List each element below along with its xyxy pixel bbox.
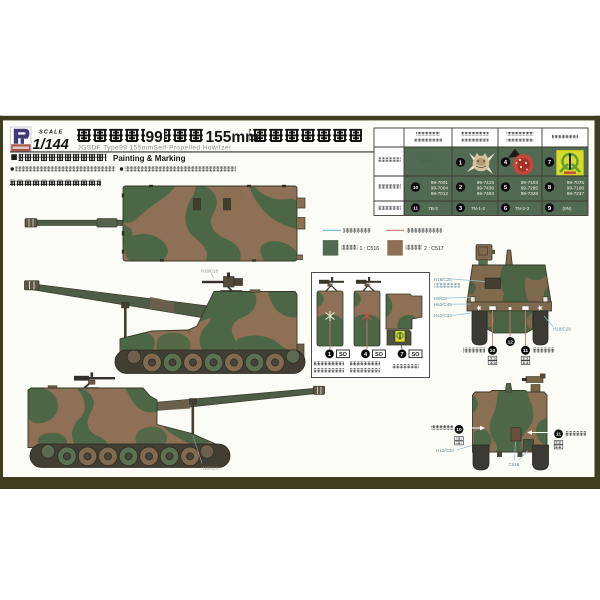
svg-text:1 : C516: 1 : C516 bbox=[360, 246, 380, 252]
svg-text:12: 12 bbox=[508, 339, 514, 345]
svg-text:2 : C517: 2 : C517 bbox=[424, 246, 444, 252]
svg-text:11: 11 bbox=[556, 432, 561, 438]
svg-text:H18/C28: H18/C28 bbox=[553, 327, 571, 332]
svg-text:99-7328: 99-7328 bbox=[521, 191, 539, 196]
svg-text:H18/C28: H18/C28 bbox=[434, 277, 452, 282]
svg-text:Painting & Marking: Painting & Marking bbox=[113, 154, 186, 163]
svg-text:H18/C28: H18/C28 bbox=[201, 269, 219, 274]
svg-text:SO: SO bbox=[339, 352, 348, 358]
svg-text:H18/C28: H18/C28 bbox=[201, 466, 219, 471]
svg-text:99-7436: 99-7436 bbox=[477, 186, 495, 191]
svg-text:1: 1 bbox=[328, 352, 331, 358]
svg-text:1/144: 1/144 bbox=[33, 137, 69, 153]
svg-text:JGSDF Type99 155mmSelf-Propell: JGSDF Type99 155mmSelf-Propelled Howitze… bbox=[78, 145, 232, 152]
svg-text:99-7012: 99-7012 bbox=[431, 191, 449, 196]
svg-text:99-7004: 99-7004 bbox=[431, 186, 449, 191]
svg-text:H8/C8: H8/C8 bbox=[434, 296, 447, 301]
svg-text:10: 10 bbox=[490, 348, 496, 354]
svg-text:10: 10 bbox=[456, 427, 462, 433]
svg-text:2: 2 bbox=[459, 185, 462, 191]
svg-text:99-7237: 99-7237 bbox=[567, 191, 585, 196]
svg-text:7: 7 bbox=[400, 352, 403, 358]
svg-text:11: 11 bbox=[523, 348, 528, 354]
svg-text:SCALE: SCALE bbox=[39, 130, 63, 136]
svg-text:7N-2-3: 7N-2-3 bbox=[515, 206, 529, 211]
svg-text:H62/C49: H62/C49 bbox=[434, 302, 452, 307]
svg-text:10: 10 bbox=[413, 185, 419, 191]
svg-text:C516: C516 bbox=[509, 462, 520, 467]
svg-text:99-7075: 99-7075 bbox=[567, 180, 585, 185]
svg-text:H12/C33: H12/C33 bbox=[436, 448, 454, 453]
svg-text:7B-3: 7B-3 bbox=[428, 206, 438, 211]
svg-text:H12/C33: H12/C33 bbox=[434, 313, 452, 318]
svg-text:99-7285: 99-7285 bbox=[521, 186, 539, 191]
svg-text:99-7415: 99-7415 bbox=[477, 180, 495, 185]
svg-text:99-7493: 99-7493 bbox=[477, 191, 495, 196]
svg-text:SO: SO bbox=[375, 352, 384, 358]
svg-text:7: 7 bbox=[548, 160, 551, 166]
svg-text:99-7103: 99-7103 bbox=[521, 180, 539, 185]
svg-text:99-7196: 99-7196 bbox=[567, 186, 585, 191]
svg-text:99-7001: 99-7001 bbox=[431, 180, 449, 185]
svg-text:(9N): (9N) bbox=[563, 206, 572, 211]
svg-text:99: 99 bbox=[146, 129, 164, 146]
svg-text:SO: SO bbox=[411, 352, 420, 358]
svg-text:11: 11 bbox=[413, 206, 418, 212]
svg-text:7N-1-2: 7N-1-2 bbox=[471, 206, 485, 211]
